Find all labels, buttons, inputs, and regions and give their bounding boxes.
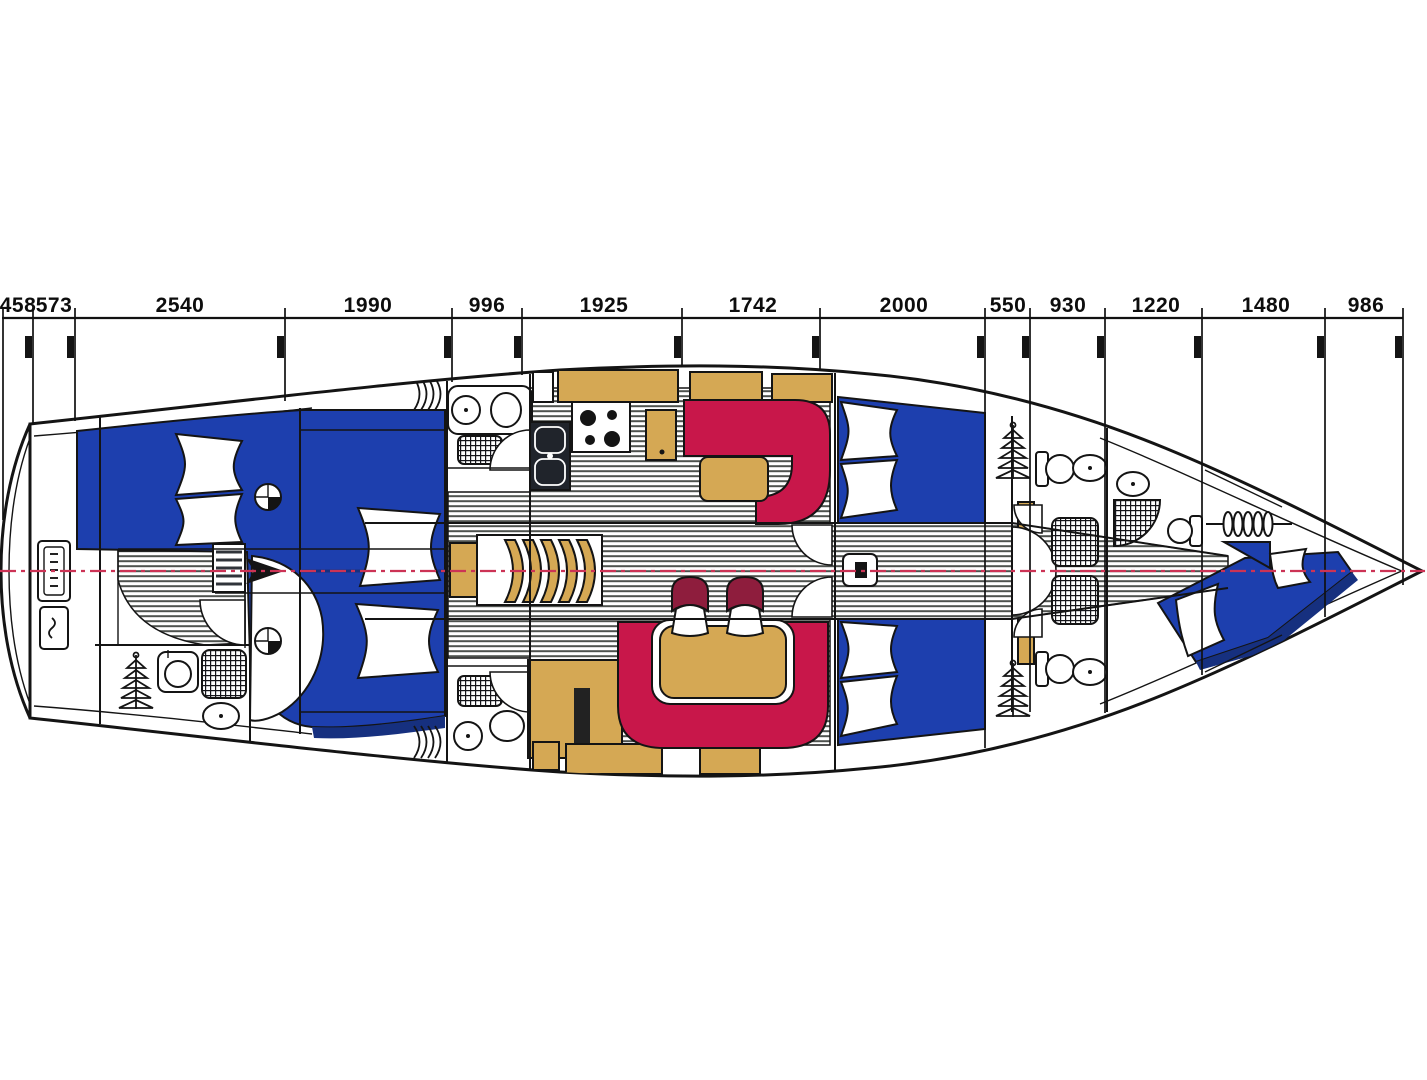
washbasin-bowl bbox=[165, 661, 191, 687]
pillow bbox=[841, 622, 897, 678]
dimension-label: 2540 bbox=[156, 294, 205, 317]
toilet-icon bbox=[491, 393, 521, 427]
pillow bbox=[358, 508, 440, 586]
toilet-icon bbox=[490, 711, 524, 741]
drain bbox=[1131, 482, 1135, 486]
pillow bbox=[841, 402, 897, 460]
galley-top-locker bbox=[772, 374, 832, 402]
salon-chair bbox=[727, 577, 763, 636]
pillow bbox=[176, 434, 242, 495]
dimension-label: 550 bbox=[990, 294, 1027, 317]
shower-grate-icon bbox=[1052, 518, 1098, 566]
cabinet-front bbox=[574, 688, 590, 744]
dimension-label: 1990 bbox=[344, 294, 393, 317]
drain bbox=[1088, 670, 1092, 674]
dinette-table bbox=[700, 457, 768, 501]
bulkhead-markers bbox=[25, 336, 1402, 358]
dimension-label: 1742 bbox=[729, 294, 778, 317]
dimension-label: 458 bbox=[0, 294, 36, 317]
locker bbox=[533, 742, 559, 770]
pillow bbox=[356, 604, 438, 678]
dimension-ticks bbox=[3, 308, 1403, 318]
dimension-label: 986 bbox=[1348, 294, 1385, 317]
aft-head-upper bbox=[448, 386, 532, 470]
dimension-label: 1925 bbox=[580, 294, 629, 317]
yacht-deck-plan: 458 573 2540 1990 996 1925 1742 2000 550… bbox=[0, 0, 1427, 1080]
locker bbox=[533, 372, 553, 402]
toilet-drain bbox=[219, 714, 223, 718]
dimension-label: 1480 bbox=[1242, 294, 1291, 317]
galley-top-locker bbox=[690, 372, 762, 402]
steering-winch-icon bbox=[255, 628, 281, 654]
dimension-label: 930 bbox=[1050, 294, 1087, 317]
worktop-handle bbox=[660, 450, 665, 455]
pillow bbox=[176, 494, 242, 545]
galley-top-locker bbox=[558, 370, 678, 402]
steering-winch-icon bbox=[255, 484, 281, 510]
dimension-label: 573 bbox=[36, 294, 73, 317]
salon-chair bbox=[672, 577, 708, 636]
dimension-labels: 458 573 2540 1990 996 1925 1742 2000 550… bbox=[0, 294, 1384, 317]
faucet-icon bbox=[547, 453, 553, 459]
toilet-icon bbox=[1046, 655, 1074, 683]
interior-layout bbox=[34, 370, 1404, 774]
dimension-label: 1220 bbox=[1132, 294, 1181, 317]
yacht-deck-plan-page: 458 573 2540 1990 996 1925 1742 2000 550… bbox=[0, 0, 1427, 1080]
locker bbox=[700, 746, 760, 774]
stove-icon bbox=[572, 402, 630, 452]
pillow bbox=[841, 460, 897, 518]
equipment-box bbox=[40, 607, 68, 649]
dimension-label: 2000 bbox=[880, 294, 929, 317]
toilet-icon bbox=[1168, 519, 1192, 543]
salon-table bbox=[660, 626, 786, 698]
drain bbox=[466, 734, 470, 738]
dimension-label: 996 bbox=[469, 294, 506, 317]
locker bbox=[566, 744, 662, 774]
shower-grate-icon bbox=[202, 650, 246, 698]
toilet-icon bbox=[1046, 455, 1074, 483]
drain bbox=[1088, 466, 1092, 470]
shower-grate-icon bbox=[1052, 576, 1098, 624]
drain bbox=[464, 408, 468, 412]
burner bbox=[585, 435, 595, 445]
burner bbox=[580, 410, 596, 426]
burner bbox=[607, 410, 617, 420]
burner bbox=[604, 431, 620, 447]
